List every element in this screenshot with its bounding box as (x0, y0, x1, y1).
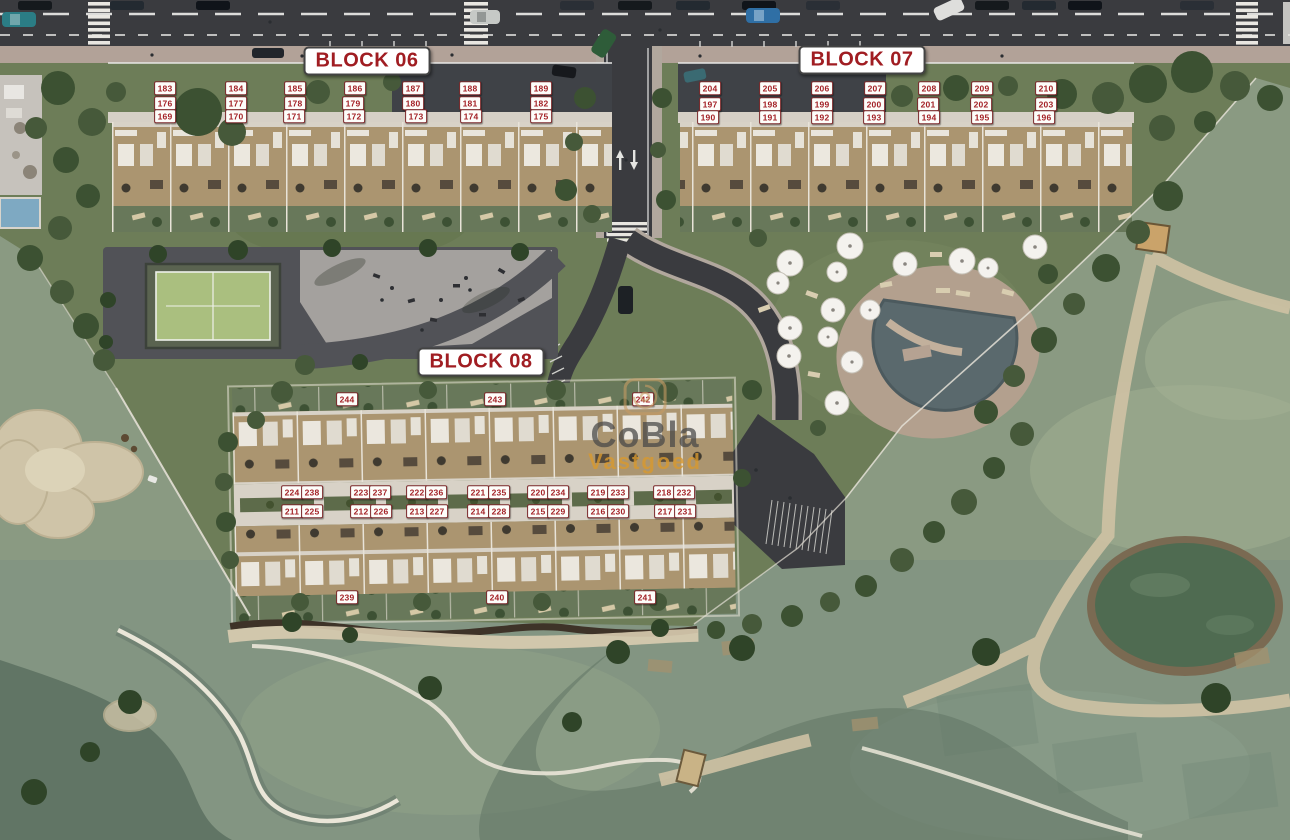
unit-label-169: 169 (154, 109, 176, 123)
unit-label-234: 234 (547, 485, 569, 499)
unit-label-218: 218 (653, 485, 675, 499)
unit-label-197: 197 (699, 97, 721, 111)
unit-label-233: 233 (607, 485, 629, 499)
unit-label-239: 239 (336, 590, 358, 604)
unit-label-232: 232 (673, 485, 695, 499)
unit-label-219: 219 (587, 485, 609, 499)
unit-label-185: 185 (284, 81, 306, 95)
unit-label-188: 188 (459, 81, 481, 95)
unit-label-170: 170 (225, 109, 247, 123)
unit-label-193: 193 (863, 110, 885, 124)
unit-label-211: 211 (281, 504, 302, 518)
unit-label-224: 224 (281, 485, 303, 499)
unit-label-237: 237 (369, 485, 391, 499)
unit-label-204: 204 (699, 81, 721, 95)
unit-label-230: 230 (607, 504, 629, 518)
unit-label-240: 240 (486, 590, 508, 604)
unit-label-201: 201 (917, 97, 939, 111)
unit-label-175: 175 (530, 109, 552, 123)
unit-label-221: 221 (467, 485, 489, 499)
unit-label-212: 212 (350, 504, 372, 518)
unit-label-225: 225 (301, 504, 323, 518)
unit-label-183: 183 (154, 81, 176, 95)
unit-label-209: 209 (971, 81, 993, 95)
block-08-title: BLOCK 08 (418, 348, 545, 377)
unit-label-177: 177 (225, 96, 247, 110)
unit-label-202: 202 (970, 97, 992, 111)
labels-layer: BLOCK 0618318418518618718818917617717817… (0, 0, 1290, 840)
unit-label-182: 182 (530, 96, 552, 110)
unit-label-226: 226 (370, 504, 392, 518)
unit-label-198: 198 (759, 97, 781, 111)
unit-label-229: 229 (547, 504, 569, 518)
block-06-title: BLOCK 06 (304, 47, 431, 76)
unit-label-181: 181 (459, 96, 481, 110)
unit-label-214: 214 (467, 504, 489, 518)
unit-label-215: 215 (527, 504, 549, 518)
unit-label-244: 244 (336, 392, 358, 406)
unit-label-242: 242 (632, 392, 654, 406)
unit-label-217: 217 (654, 504, 676, 518)
unit-label-227: 227 (426, 504, 448, 518)
unit-label-187: 187 (402, 81, 424, 95)
unit-label-186: 186 (344, 81, 366, 95)
unit-label-199: 199 (811, 97, 833, 111)
unit-label-235: 235 (488, 485, 510, 499)
unit-label-195: 195 (971, 110, 993, 124)
block-07-title: BLOCK 07 (799, 46, 926, 75)
unit-label-184: 184 (225, 81, 247, 95)
unit-label-200: 200 (863, 97, 885, 111)
unit-label-171: 171 (283, 109, 305, 123)
unit-label-179: 179 (342, 96, 364, 110)
unit-label-210: 210 (1035, 81, 1057, 95)
unit-label-207: 207 (864, 81, 886, 95)
unit-label-196: 196 (1033, 110, 1055, 124)
unit-label-190: 190 (697, 110, 719, 124)
unit-label-191: 191 (759, 110, 781, 124)
unit-label-216: 216 (587, 504, 609, 518)
unit-label-243: 243 (484, 392, 506, 406)
unit-label-178: 178 (284, 96, 306, 110)
unit-label-236: 236 (425, 485, 447, 499)
unit-label-241: 241 (634, 590, 656, 604)
unit-label-206: 206 (811, 81, 833, 95)
unit-label-228: 228 (488, 504, 510, 518)
unit-label-180: 180 (402, 96, 424, 110)
unit-label-205: 205 (759, 81, 781, 95)
unit-label-208: 208 (918, 81, 940, 95)
unit-label-172: 172 (343, 109, 365, 123)
unit-label-203: 203 (1035, 97, 1057, 111)
unit-label-213: 213 (406, 504, 428, 518)
unit-label-192: 192 (811, 110, 833, 124)
unit-label-176: 176 (154, 96, 176, 110)
unit-label-173: 173 (405, 109, 427, 123)
unit-label-238: 238 (301, 485, 323, 499)
unit-label-194: 194 (918, 110, 940, 124)
unit-label-189: 189 (530, 81, 552, 95)
unit-label-231: 231 (674, 504, 696, 518)
unit-label-174: 174 (460, 109, 482, 123)
site-plan: BLOCK 0618318418518618718818917617717817… (0, 0, 1290, 840)
unit-label-220: 220 (527, 485, 549, 499)
